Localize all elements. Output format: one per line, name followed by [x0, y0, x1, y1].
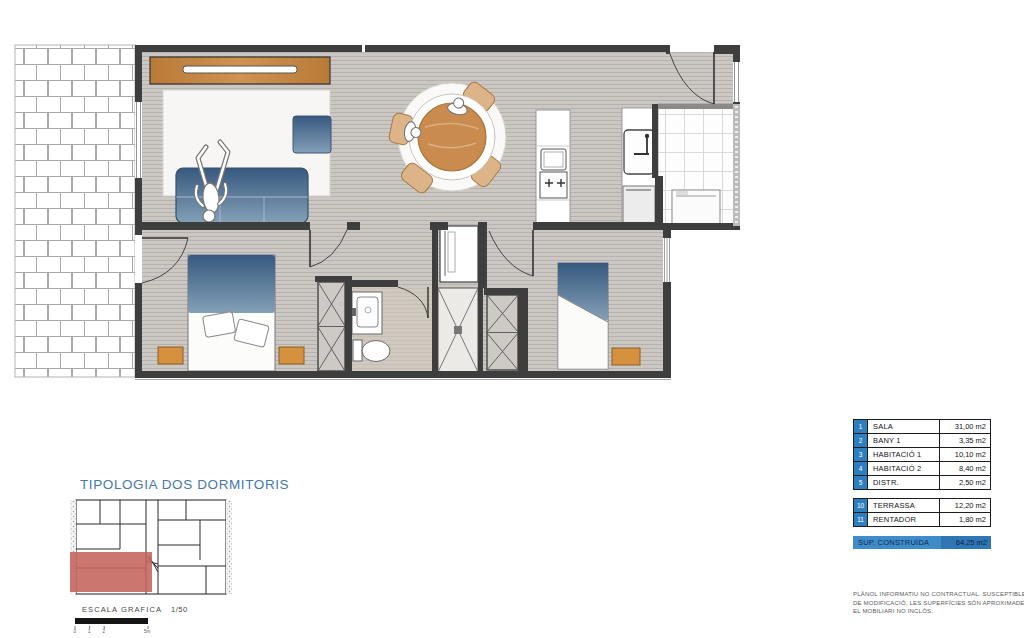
- disclaimer-line: DE MODIFICACIÓ. LES SUPERFÍCIES SÓN APRO…: [853, 599, 1024, 608]
- legend-row: 10TERRASSA12,20 m2: [853, 498, 991, 513]
- page-title: TIPOLOGIA DOS DORMITORIS: [80, 477, 289, 492]
- room-name: HABITACIÓ 1: [868, 448, 939, 461]
- scale-tick: 1: [88, 629, 91, 634]
- legend-total-bar: SUP. CONSTRUÏDA 64,25 m2: [853, 536, 991, 549]
- double-bed: [188, 255, 275, 371]
- disclaimer-line: EL MOBILIARI NO INCLÒS.: [853, 607, 1024, 616]
- room-name: RENTADOR: [868, 513, 939, 526]
- cooktop: [540, 172, 567, 198]
- toilet: [353, 340, 390, 362]
- disclaimer-line: PLÀNOL INFORMATIU NO CONTRACTUAL. SUSCEP…: [853, 590, 1024, 599]
- fridge: [440, 226, 478, 282]
- room-name: SALA: [868, 420, 939, 433]
- shower: [438, 288, 478, 372]
- room-number: 2: [854, 434, 868, 447]
- key-plan-facade: [226, 500, 232, 594]
- legend-row: 5DISTR.2,50 m2: [853, 475, 991, 490]
- room-number: 3: [854, 448, 868, 461]
- washing-machine: [672, 190, 720, 224]
- room-number: 4: [854, 462, 868, 475]
- area-legend: 1SALA31,00 m22BANY 13,35 m23HABITACIÓ 11…: [853, 420, 991, 549]
- kitchen-wall-units: [622, 108, 656, 225]
- legend-row: 3HABITACIÓ 110,10 m2: [853, 447, 991, 462]
- oven: [623, 186, 655, 224]
- scale-tick: 0: [74, 629, 77, 634]
- plan-sheet: 0 1 2 5m TIPOLOGIA DOS DORMITORIS ESCALA…: [0, 0, 1024, 638]
- room-name: HABITACIÓ 2: [868, 462, 939, 475]
- total-label: SUP. CONSTRUÏDA: [853, 536, 941, 549]
- floor-plan: [15, 45, 740, 380]
- laundry-window-wall: [658, 104, 736, 109]
- key-plan: [70, 500, 232, 594]
- room-number: 11: [854, 513, 868, 526]
- disclaimer: PLÀNOL INFORMATIU NO CONTRACTUAL. SUSCEP…: [853, 590, 1024, 616]
- legend-row: 11RENTADOR1,80 m2: [853, 512, 991, 527]
- single-bed: [558, 263, 608, 369]
- tv: [183, 66, 297, 73]
- wardrobe-hab2: [487, 295, 518, 370]
- total-value: 64,25 m2: [941, 536, 991, 549]
- pillow: [202, 312, 235, 338]
- legend-table-extra: 10TERRASSA12,20 m211RENTADOR1,80 m2: [853, 498, 991, 527]
- room-name: DISTR.: [868, 476, 939, 489]
- kitchen-counter: [536, 110, 570, 225]
- room-name: TERRASSA: [868, 499, 939, 512]
- armchair: [293, 116, 331, 153]
- nightstand: [279, 347, 304, 364]
- scale-ratio: 1/50: [171, 605, 188, 614]
- room-number: 5: [854, 476, 868, 489]
- room-area: 1,80 m2: [939, 513, 990, 526]
- room-number: 10: [854, 499, 868, 512]
- legend-row: 1SALA31,00 m2: [853, 419, 991, 434]
- key-plan-highlight: [70, 552, 152, 592]
- legend-table-main: 1SALA31,00 m22BANY 13,35 m23HABITACIÓ 11…: [853, 419, 991, 490]
- bathroom-vanity: [352, 292, 382, 334]
- room-area: 8,40 m2: [939, 462, 990, 475]
- room-number: 1: [854, 420, 868, 433]
- room-name: BANY 1: [868, 434, 939, 447]
- wardrobe-hab1: [318, 282, 345, 371]
- legend-row: 2BANY 13,35 m2: [853, 433, 991, 448]
- room-area: 31,00 m2: [939, 420, 990, 433]
- room-area: 10,10 m2: [939, 448, 990, 461]
- scale-caption-label: ESCALA GRAFICA: [82, 605, 162, 614]
- nightstand: [612, 348, 640, 365]
- scale-bar: 0 1 2 5m: [74, 618, 151, 634]
- vanity-faucet-icon: [352, 308, 356, 316]
- room-area: 3,35 m2: [939, 434, 990, 447]
- legend-row: 4HABITACIÓ 28,40 m2: [853, 461, 991, 476]
- washbasin: [357, 297, 378, 327]
- scale-tick: 2: [103, 629, 106, 634]
- nightstand: [158, 347, 183, 364]
- scale-tick: 5m: [144, 629, 151, 634]
- room-area: 2,50 m2: [939, 476, 990, 489]
- terrace-paving: [15, 45, 135, 377]
- scale-caption: ESCALA GRAFICA1/50: [82, 605, 188, 614]
- room-area: 12,20 m2: [939, 499, 990, 512]
- second-sink: [624, 130, 654, 174]
